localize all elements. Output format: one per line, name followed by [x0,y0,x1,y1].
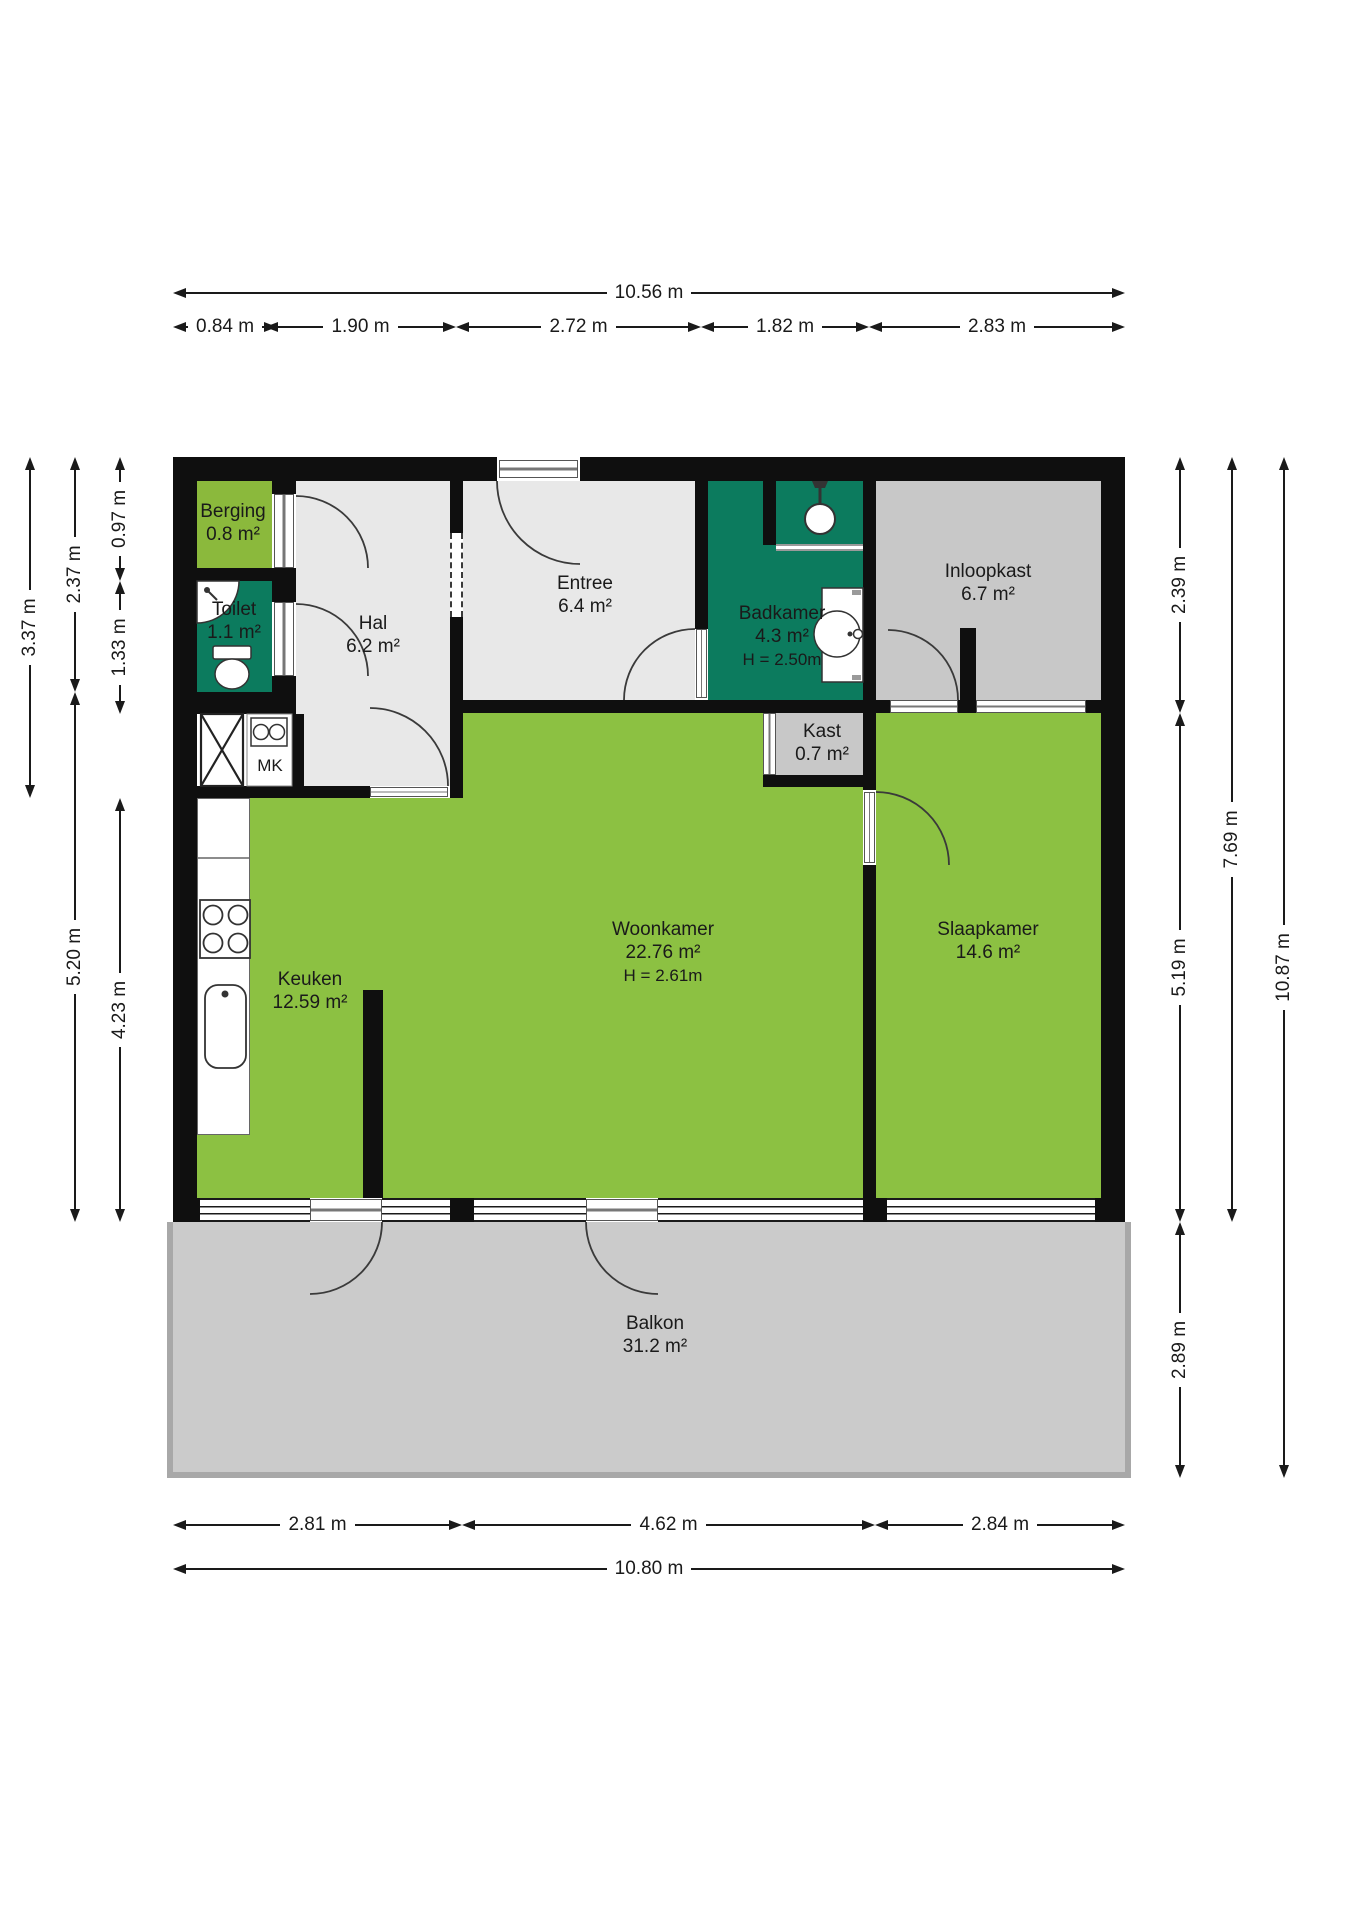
wall-berging-right-c [272,676,296,692]
balkon-door-center-leaf [586,1199,658,1221]
wall-entree-woonkamer [463,700,876,713]
wall-keuken-stub [363,990,383,1198]
berging-door-leaf [274,494,294,568]
shower-partition-wall [763,481,776,545]
slaapkamer-door-leaf [864,792,875,863]
wall-south-c [863,1198,887,1222]
room-label-inloopkast: Inloopkast6.7 m² [945,560,1032,606]
dim-left-mid-1: 5.20 m [64,692,86,1222]
shower-glass-wall [776,544,863,551]
hal-entree-open-passage [450,533,463,617]
wall-kast-bottom [763,775,876,787]
wall-hal-bottom [173,786,370,798]
wall-berging-right-a [272,481,296,494]
dim-right-inner-2: 2.89 m [1169,1222,1191,1478]
dim-top-total: 10.56 m [173,282,1125,304]
balkon-door-left-leaf [310,1199,382,1221]
room-label-woonkamer: Woonkamer22.76 m² H = 2.61m [612,918,714,987]
window-keuken [200,1198,310,1222]
wall-south-d [1095,1198,1125,1222]
inloopkast-slider-left [890,700,958,713]
wall-entree-badkamer [695,481,708,629]
wall-hal-entree-top [450,481,463,533]
dim-left-outer: 3.37 m [19,457,41,798]
dim-right-inner-1: 5.19 m [1169,713,1191,1222]
dim-bottom-seg-1: 4.62 m [462,1514,875,1536]
wall-berging-right-b [272,568,296,602]
window-woonkamer-left [382,1198,450,1222]
wall-inloopkast-bottom-b [958,700,976,713]
room-label-slaapkamer: Slaapkamer14.6 m² [937,918,1038,964]
wall-badkamer-inloopkast [863,481,876,700]
dim-bottom-total: 10.80 m [173,1558,1125,1580]
wall-inloopkast-stub [960,628,976,700]
dim-bottom-seg-0: 2.81 m [173,1514,462,1536]
floorplan-page: { "rooms": { "berging": {"name": "Bergin… [0,0,1358,1920]
room-label-mk: MK [257,754,283,777]
wall-south-b [450,1198,474,1222]
wall-left [173,457,197,1222]
kast-door-leaf [763,713,776,775]
wall-shaft-right [292,714,304,786]
window-woonkamer-mid [474,1198,586,1222]
wall-hal-entree-bottom [450,617,463,798]
dim-bottom-seg-2: 2.84 m [875,1514,1125,1536]
room-label-hal: Hal6.2 m² [346,612,400,658]
wall-toilet-bottom [173,692,296,714]
room-label-badkamer: Badkamer4.3 m² H = 2.50m [739,602,826,671]
dim-top-seg-1: 1.90 m [265,316,456,338]
room-label-balkon: Balkon31.2 m² [623,1312,687,1358]
dim-right-outer: 10.87 m [1273,457,1295,1478]
wall-right [1101,457,1125,1222]
toilet-door-leaf [274,602,294,676]
dim-right-mid: 7.69 m [1221,457,1243,1222]
wall-berging-toilet [197,568,272,581]
dim-top-seg-2: 2.72 m [456,316,701,338]
wall-south-a [173,1198,200,1222]
room-label-entree: Entree6.4 m² [557,572,613,618]
dim-top-seg-0: 0.84 m [173,316,265,338]
inloopkast-slider-right [976,700,1086,713]
window-slaapkamer [887,1198,1095,1222]
room-label-keuken: Keuken12.59 m² [273,968,348,1014]
dim-right-inner-0: 2.39 m [1169,457,1191,713]
dim-left-inner-0: 0.97 m [109,457,131,581]
dim-top-seg-4: 2.83 m [869,316,1125,338]
hal-door-leaf [370,787,448,797]
wall-top-right [580,457,1125,481]
room-label-berging: Berging0.8 m² [200,500,266,546]
room-label-toilet2: Toilet1.1 m² [207,598,261,644]
wall-woonkamer-slaapkamer-bottom [863,865,876,1198]
kitchen-counter [197,798,250,1135]
wall-inloopkast-bottom-c [1086,700,1101,713]
room-label-kast: Kast0.7 m² [795,720,849,766]
window-woonkamer-right [658,1198,863,1222]
wall-top-left [173,457,497,481]
wall-inloopkast-bottom-a [876,700,890,713]
dim-top-seg-3: 1.82 m [701,316,869,338]
dim-left-inner-1: 1.33 m [109,581,131,714]
dim-left-mid-0: 2.37 m [64,457,86,692]
badkamer-door-leaf [696,629,707,698]
front-door-leaf [499,460,578,478]
dim-left-inner-2: 4.23 m [109,798,131,1222]
